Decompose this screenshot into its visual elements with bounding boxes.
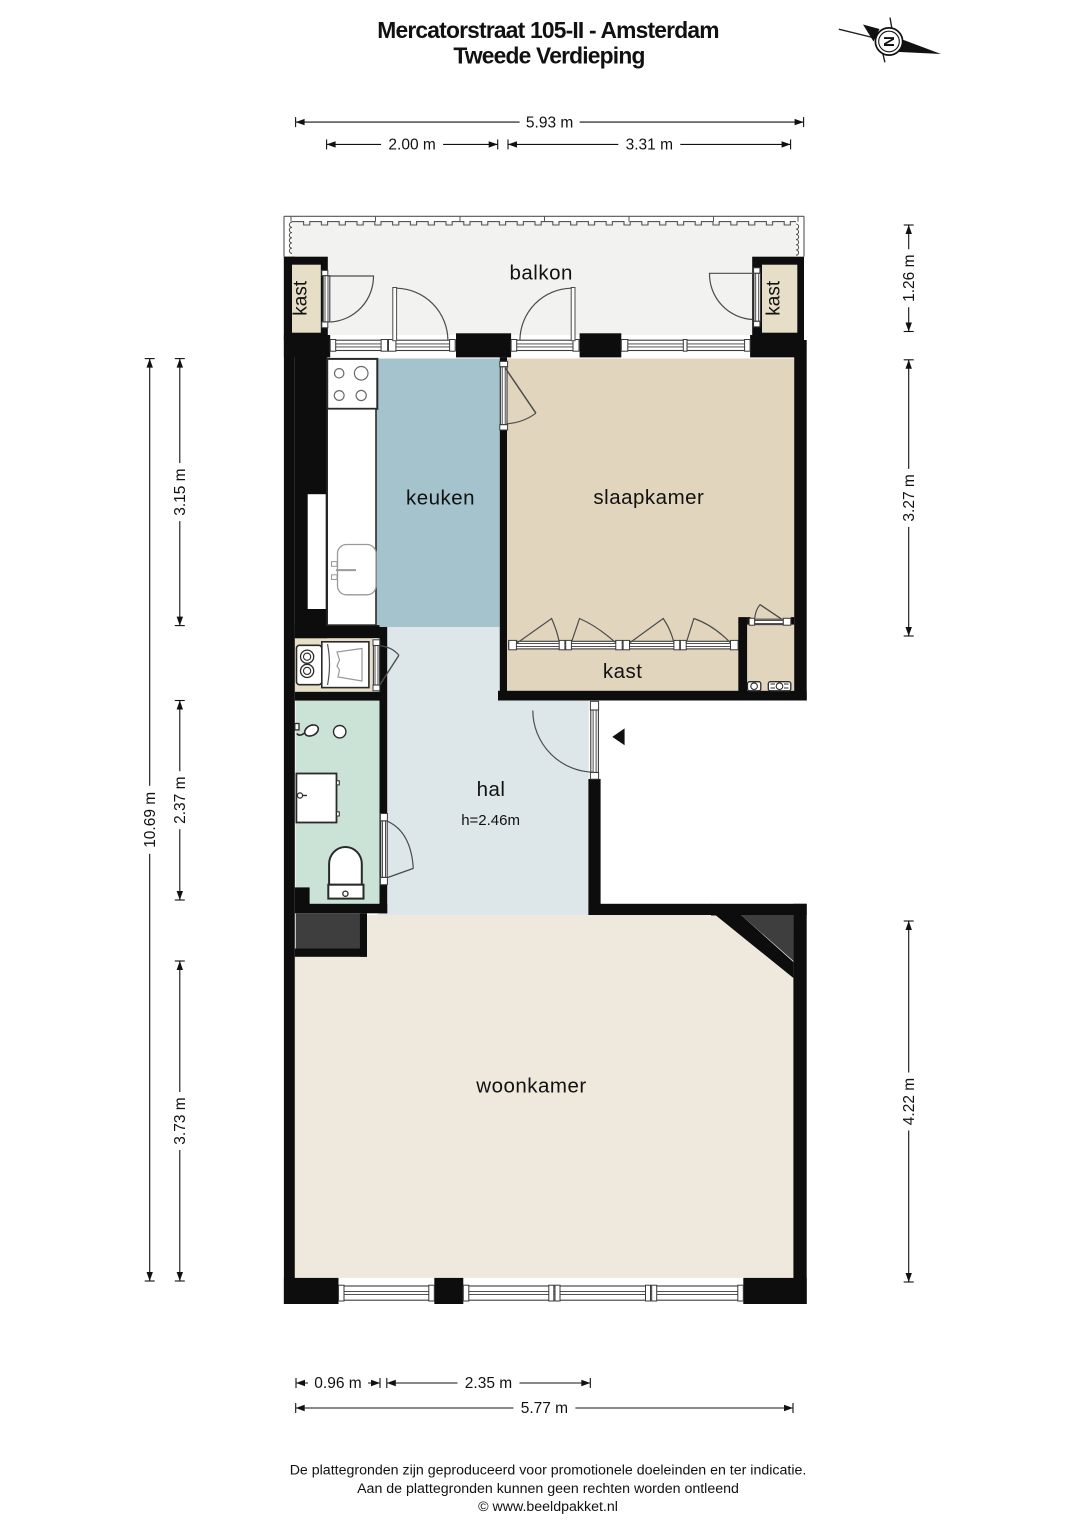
svg-text:hal: hal — [477, 778, 506, 801]
svg-text:kast: kast — [603, 660, 643, 683]
svg-text:1.26 m: 1.26 m — [901, 255, 918, 302]
svg-text:h=2.46m: h=2.46m — [461, 812, 520, 829]
svg-text:De plattegronden zijn geproduc: De plattegronden zijn geproduceerd voor … — [290, 1463, 807, 1479]
svg-text:4.22 m: 4.22 m — [901, 1078, 918, 1125]
svg-text:3.31 m: 3.31 m — [626, 137, 673, 154]
svg-text:Tweede Verdieping: Tweede Verdieping — [453, 43, 644, 69]
svg-text:10.69 m: 10.69 m — [142, 792, 159, 848]
svg-text:5.93 m: 5.93 m — [526, 114, 573, 131]
svg-text:3.73 m: 3.73 m — [172, 1097, 189, 1144]
svg-text:2.00 m: 2.00 m — [388, 137, 435, 154]
svg-text:keuken: keuken — [406, 487, 475, 510]
svg-text:slaapkamer: slaapkamer — [593, 486, 704, 509]
svg-text:5.77 m: 5.77 m — [521, 1400, 568, 1417]
svg-text:2.37 m: 2.37 m — [172, 777, 189, 824]
svg-text:balkon: balkon — [509, 262, 572, 285]
svg-text:woonkamer: woonkamer — [475, 1075, 586, 1098]
svg-text:3.15 m: 3.15 m — [172, 468, 189, 515]
svg-text:3.27 m: 3.27 m — [901, 474, 918, 521]
svg-text:kast: kast — [764, 280, 785, 316]
svg-text:2.35 m: 2.35 m — [465, 1375, 512, 1392]
svg-text:kast: kast — [291, 280, 312, 316]
svg-text:Aan de plattegronden kunnen ge: Aan de plattegronden kunnen geen rechten… — [357, 1481, 739, 1497]
svg-text:0.96 m: 0.96 m — [314, 1375, 361, 1392]
svg-text:N: N — [880, 36, 897, 47]
svg-text:© www.beeldpakket.nl: © www.beeldpakket.nl — [478, 1499, 618, 1515]
svg-text:Mercatorstraat 105-II - Amster: Mercatorstraat 105-II - Amsterdam — [377, 17, 718, 43]
